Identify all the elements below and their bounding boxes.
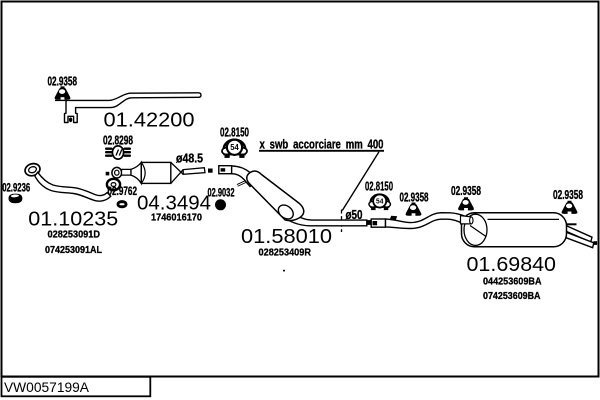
svg-text:54: 54 [230,142,239,152]
svg-text:028253409R: 028253409R [259,247,312,259]
svg-text:54: 54 [376,196,384,205]
svg-text:01.10235: 01.10235 [28,209,118,231]
svg-text:074253091AL: 074253091AL [45,244,102,256]
svg-text:VW0057199A: VW0057199A [4,379,90,395]
svg-text:02.9762: 02.9762 [108,184,138,198]
svg-text:02.9236: 02.9236 [2,180,30,194]
svg-text:02.8150: 02.8150 [365,178,393,193]
svg-text:1746016170: 1746016170 [151,212,202,224]
svg-text:01.42200: 01.42200 [104,110,195,132]
svg-text:x swb accorciare mm 400: x swb accorciare mm 400 [260,136,384,151]
svg-text:044253609BA: 044253609BA [483,275,542,287]
svg-text:02.8150: 02.8150 [220,124,249,139]
svg-text:02.9358: 02.9358 [400,189,429,204]
svg-text:028253091D: 028253091D [48,228,101,240]
svg-text:02.9032: 02.9032 [208,186,235,200]
svg-text:02.9358: 02.9358 [48,73,78,88]
svg-text:ø48.5: ø48.5 [176,151,203,166]
svg-text:074253609BA: 074253609BA [483,290,541,302]
svg-text:02.9358: 02.9358 [451,183,481,198]
svg-text:02.9358: 02.9358 [553,187,583,202]
svg-text:01.69840: 01.69840 [467,254,557,276]
svg-text:01.58010: 01.58010 [241,226,332,248]
